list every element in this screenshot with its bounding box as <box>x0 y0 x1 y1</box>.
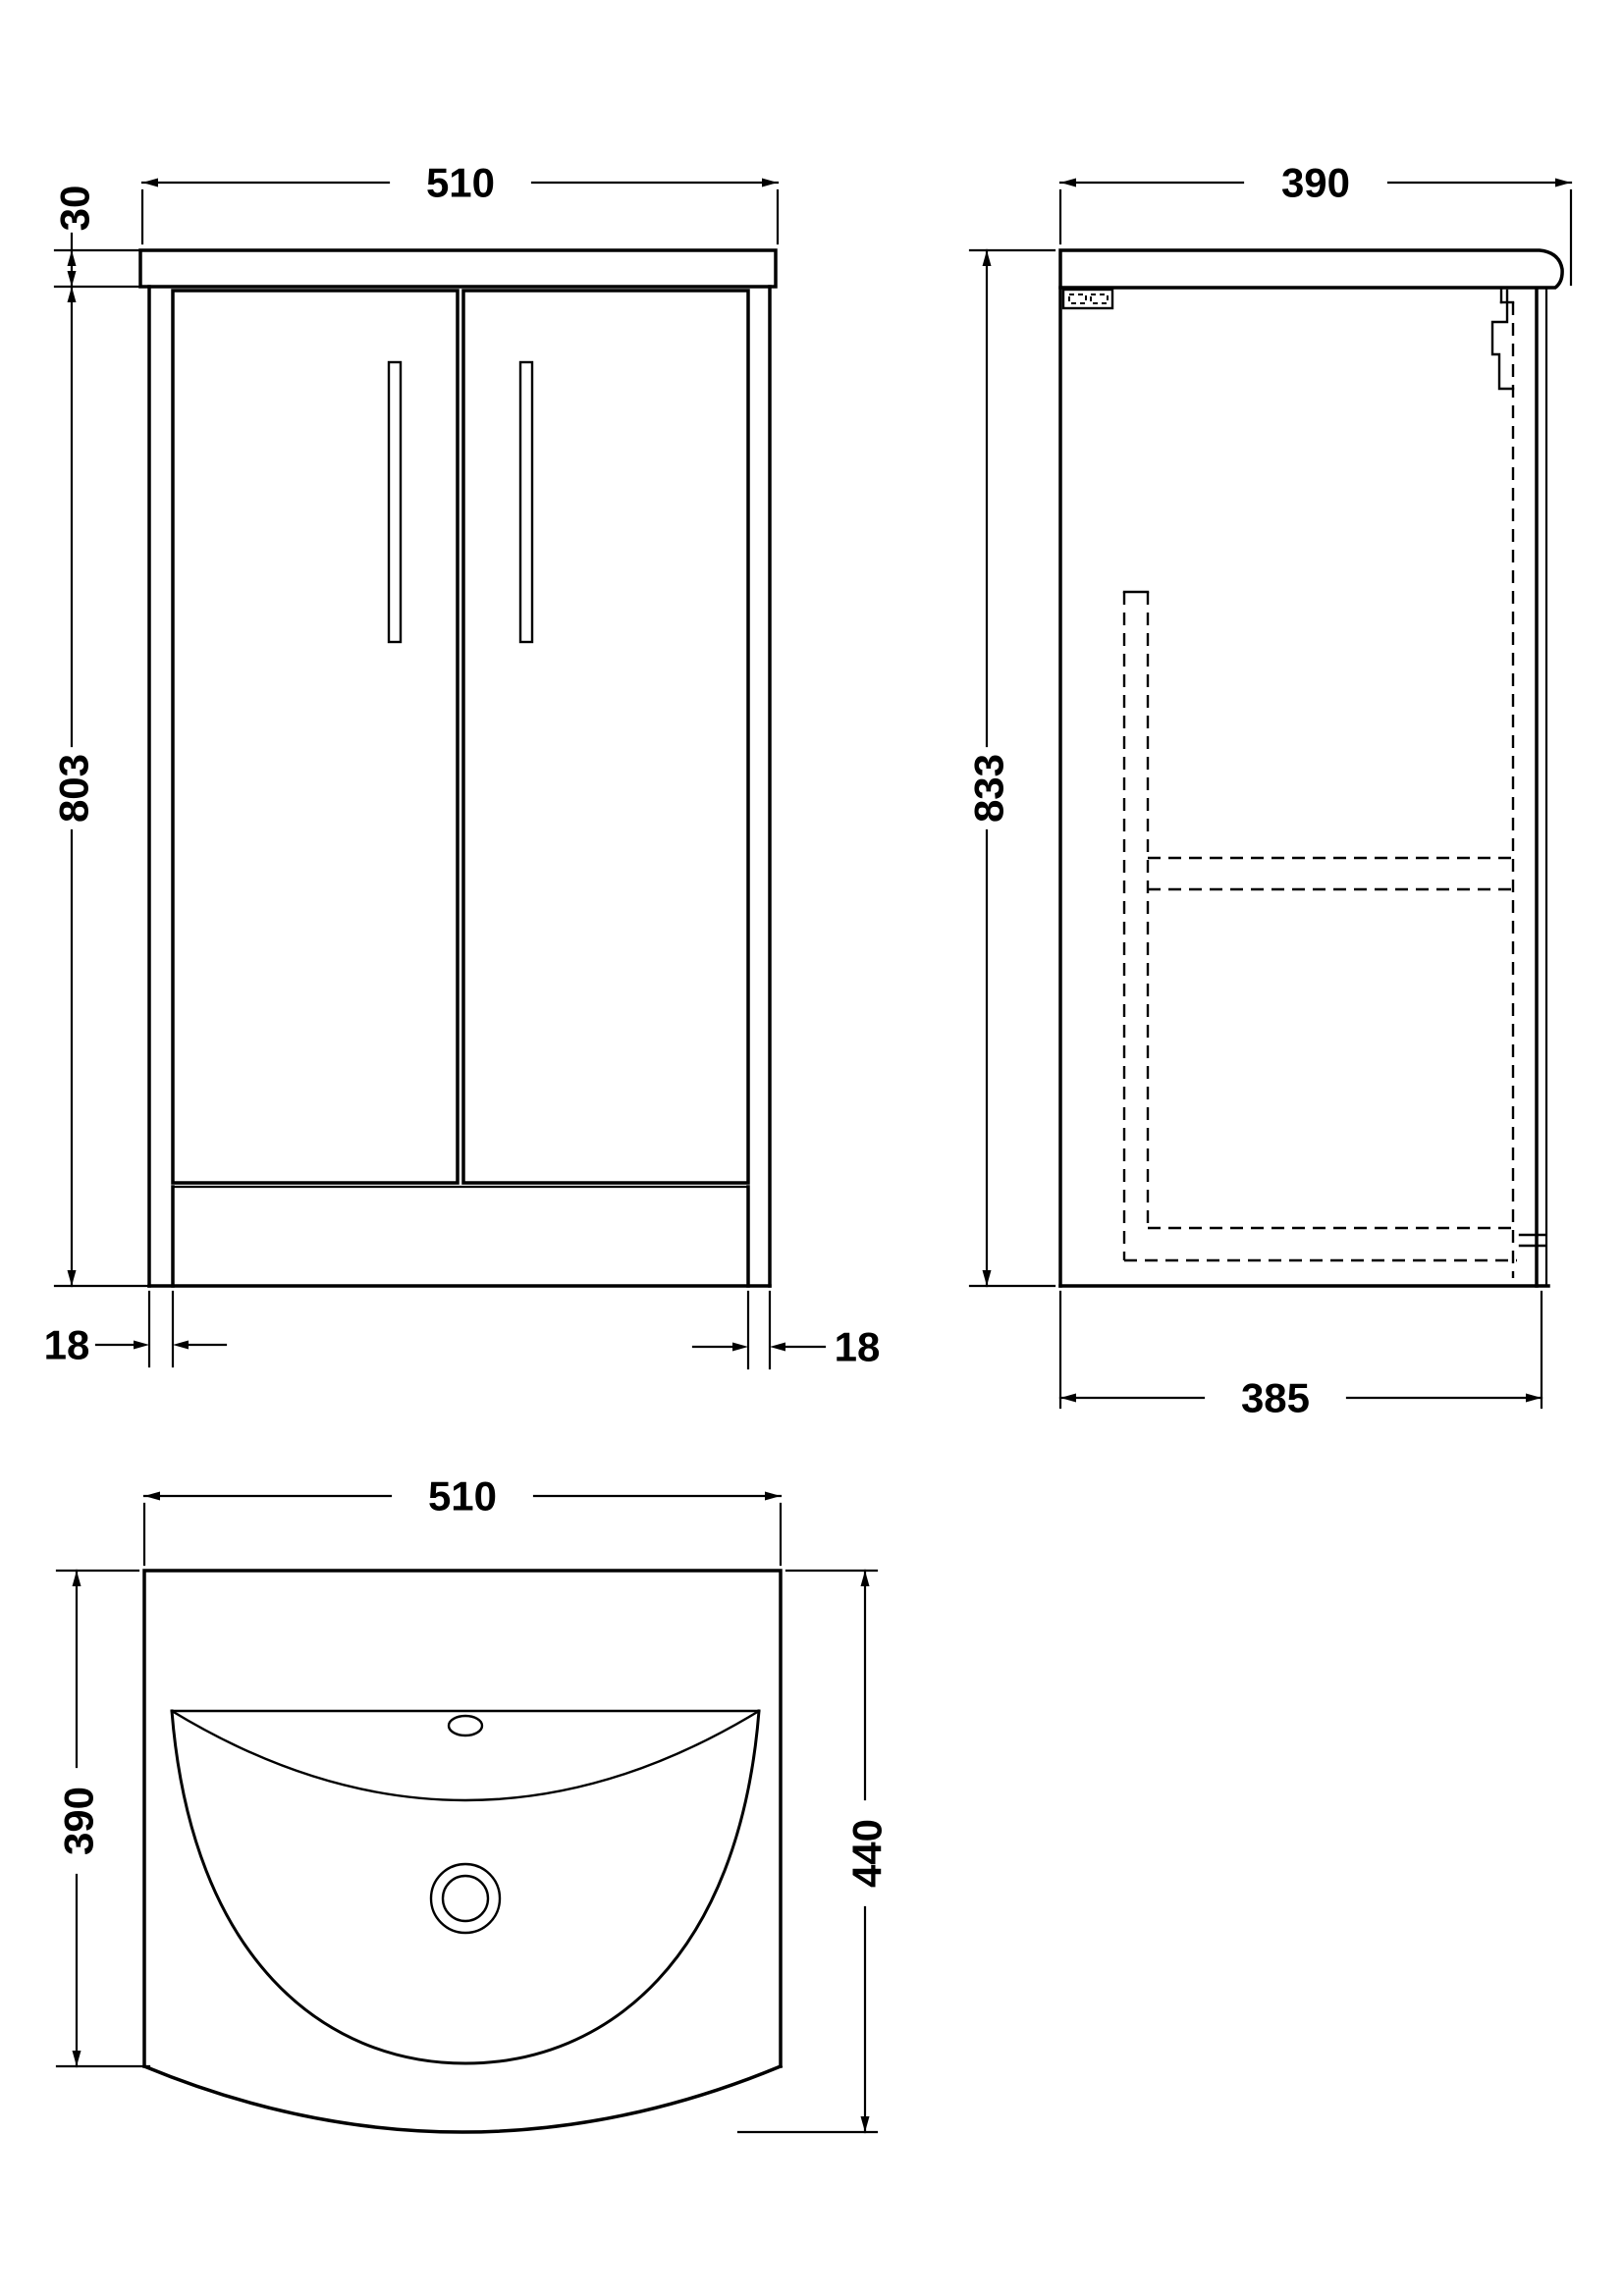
plan-basin-outline <box>144 1571 781 2132</box>
front-worktop-thickness-dim-label: 30 <box>52 186 98 232</box>
arrowhead-left-icon <box>770 1343 785 1352</box>
plan-basin-bowl <box>172 1711 759 2063</box>
arrowhead-down-icon <box>861 2116 870 2132</box>
plan-overall-depth-dimension: 440 <box>738 1571 891 2132</box>
side-height-dim-label: 833 <box>966 754 1012 823</box>
side-cabinet-depth-dimension: 385 <box>1060 1292 1542 1421</box>
plan-waste-hole-outer <box>431 1864 500 1933</box>
arrowhead-left-icon <box>144 1492 160 1501</box>
arrowhead-right-icon <box>765 1492 781 1501</box>
arrowhead-right-icon <box>1555 179 1571 187</box>
front-width-dimension: 510 <box>142 160 778 243</box>
arrowhead-right-icon <box>1526 1394 1542 1403</box>
arrowhead-right-icon <box>732 1343 748 1352</box>
arrowhead-left-icon <box>142 179 158 187</box>
arrowhead-right-icon <box>762 179 778 187</box>
arrowhead-up-icon <box>73 1571 81 1586</box>
plan-bowl-front-curve <box>172 1711 759 2063</box>
plan-tap-hole <box>449 1716 482 1735</box>
arrowhead-left-icon <box>173 1341 189 1350</box>
front-width-dim-label: 510 <box>426 160 495 206</box>
front-worktop <box>140 250 776 287</box>
arrowhead-up-icon <box>68 250 77 266</box>
arrowhead-down-icon <box>983 1270 992 1286</box>
side-depth-dim-label: 390 <box>1281 160 1350 206</box>
plan-depth-dim-label: 390 <box>56 1787 102 1855</box>
arrowhead-down-icon <box>68 271 77 287</box>
arrowhead-up-icon <box>68 287 77 302</box>
arrowhead-down-icon <box>68 1270 77 1286</box>
front-right-leg-dimension: 18 <box>693 1292 880 1370</box>
side-hinge-top-right <box>1492 291 1513 389</box>
side-hidden-internals <box>1124 302 1544 1278</box>
front-cabinet-height-dim-label: 803 <box>51 754 97 823</box>
front-height-dimensions: 30 803 <box>51 186 147 1286</box>
arrowhead-up-icon <box>983 250 992 266</box>
side-cabinet-profile <box>1060 288 1548 1286</box>
arrowhead-right-icon <box>134 1341 149 1350</box>
drawing-sheet: 510 30 803 <box>0 0 1623 2296</box>
front-view: 510 30 803 <box>44 160 881 1370</box>
side-cabinet-depth-dim-label: 385 <box>1241 1375 1310 1421</box>
technical-drawing-canvas: 510 30 803 <box>0 0 1623 2296</box>
plan-waste-hole-inner <box>443 1876 488 1921</box>
front-left-leg-dim-label: 18 <box>44 1322 90 1368</box>
plan-basin-front-bulge <box>144 2066 781 2132</box>
front-door-left <box>173 291 458 1183</box>
front-left-leg-dimension: 18 <box>44 1292 226 1368</box>
plan-depth-dimension: 390 <box>56 1571 149 2066</box>
side-worktop-profile <box>1060 250 1562 288</box>
arrowhead-left-icon <box>1060 179 1076 187</box>
plan-width-dim-label: 510 <box>428 1473 497 1520</box>
side-height-dimension: 833 <box>966 250 1055 1286</box>
front-door-right <box>463 291 748 1183</box>
front-right-leg-dim-label: 18 <box>835 1324 881 1370</box>
arrowhead-up-icon <box>861 1571 870 1586</box>
plan-width-dimension: 510 <box>144 1473 781 1565</box>
plan-bowl-back-curve <box>172 1711 759 1800</box>
side-hinge-top-left <box>1063 290 1112 308</box>
plan-view: 510 390 <box>56 1473 891 2132</box>
arrowhead-down-icon <box>73 2051 81 2066</box>
plan-overall-depth-dim-label: 440 <box>844 1819 891 1888</box>
arrowhead-left-icon <box>1060 1394 1076 1403</box>
side-view: 390 <box>966 160 1571 1421</box>
